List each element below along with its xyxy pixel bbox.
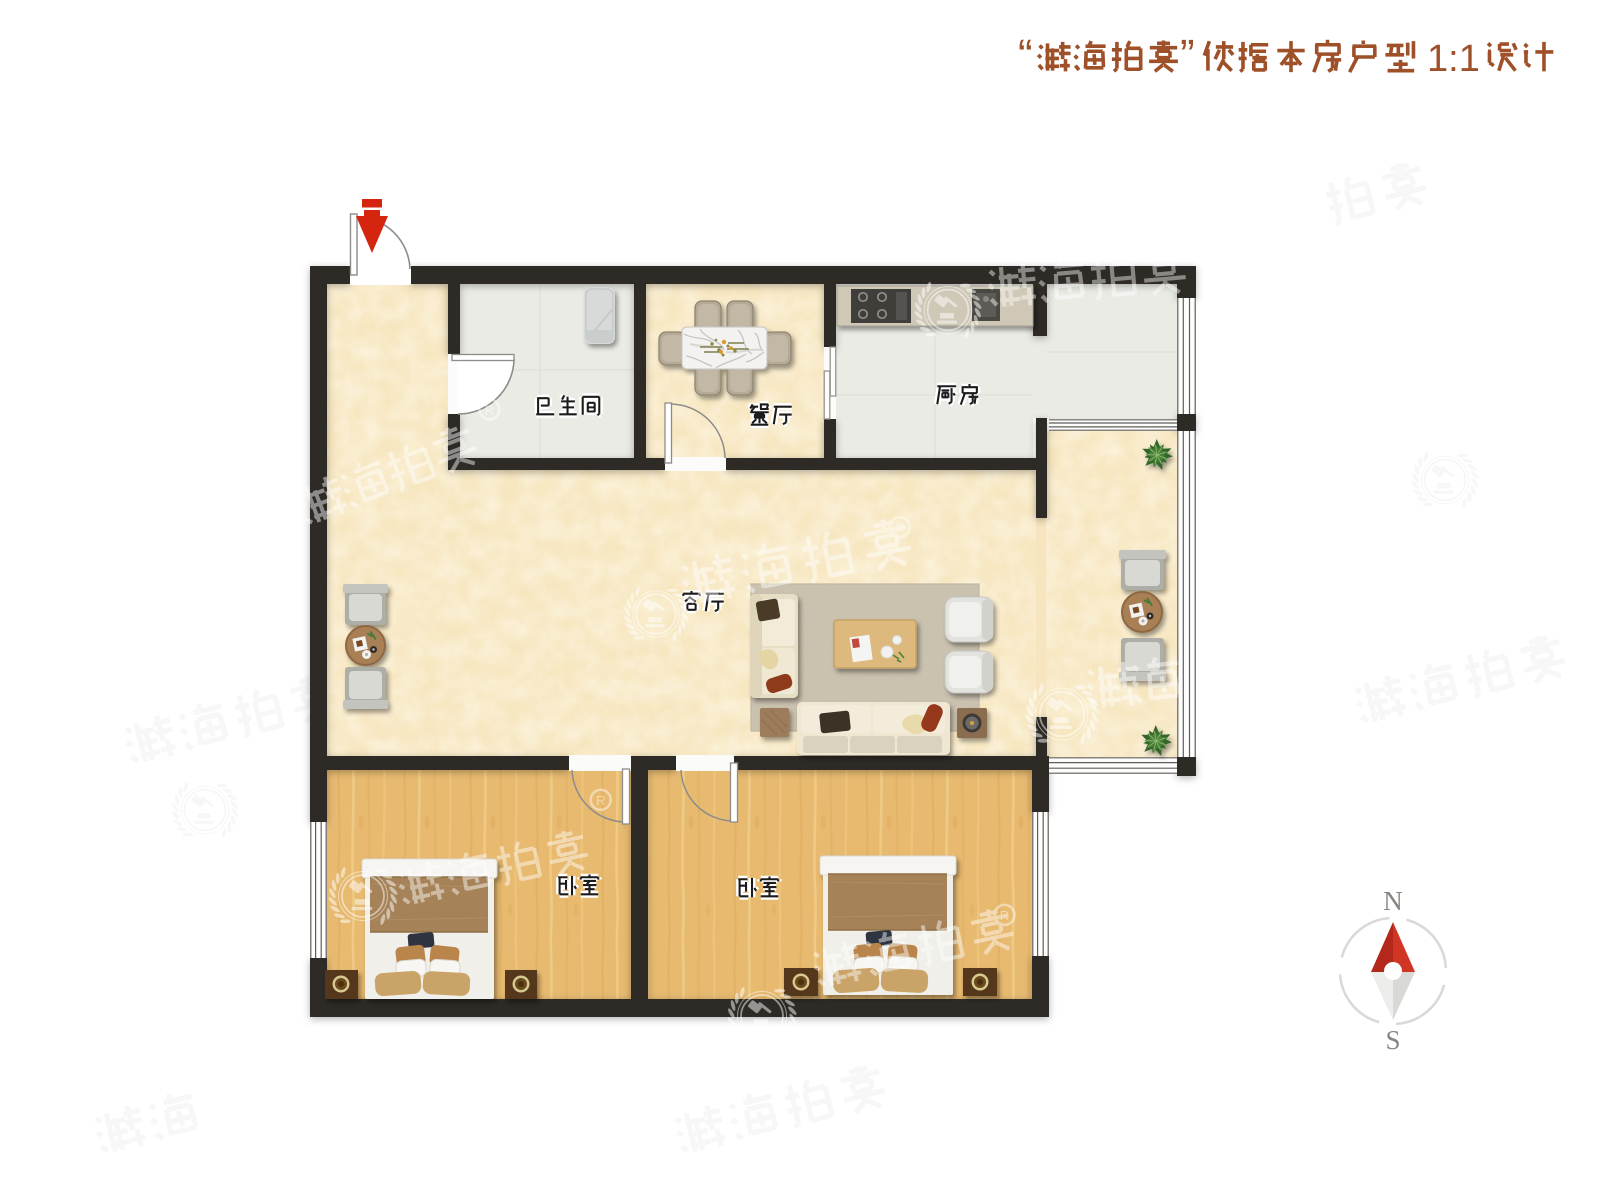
- svg-text:1:1: 1:1: [1427, 38, 1480, 80]
- svg-text:N: N: [1383, 886, 1403, 916]
- svg-text:R: R: [485, 402, 494, 417]
- svg-text:R: R: [596, 793, 605, 808]
- svg-text:”: ”: [1180, 31, 1195, 80]
- svg-text:“: “: [1018, 31, 1033, 80]
- svg-text:R: R: [895, 520, 904, 535]
- svg-text:S: S: [1385, 1025, 1400, 1055]
- svg-text:R: R: [1000, 908, 1009, 923]
